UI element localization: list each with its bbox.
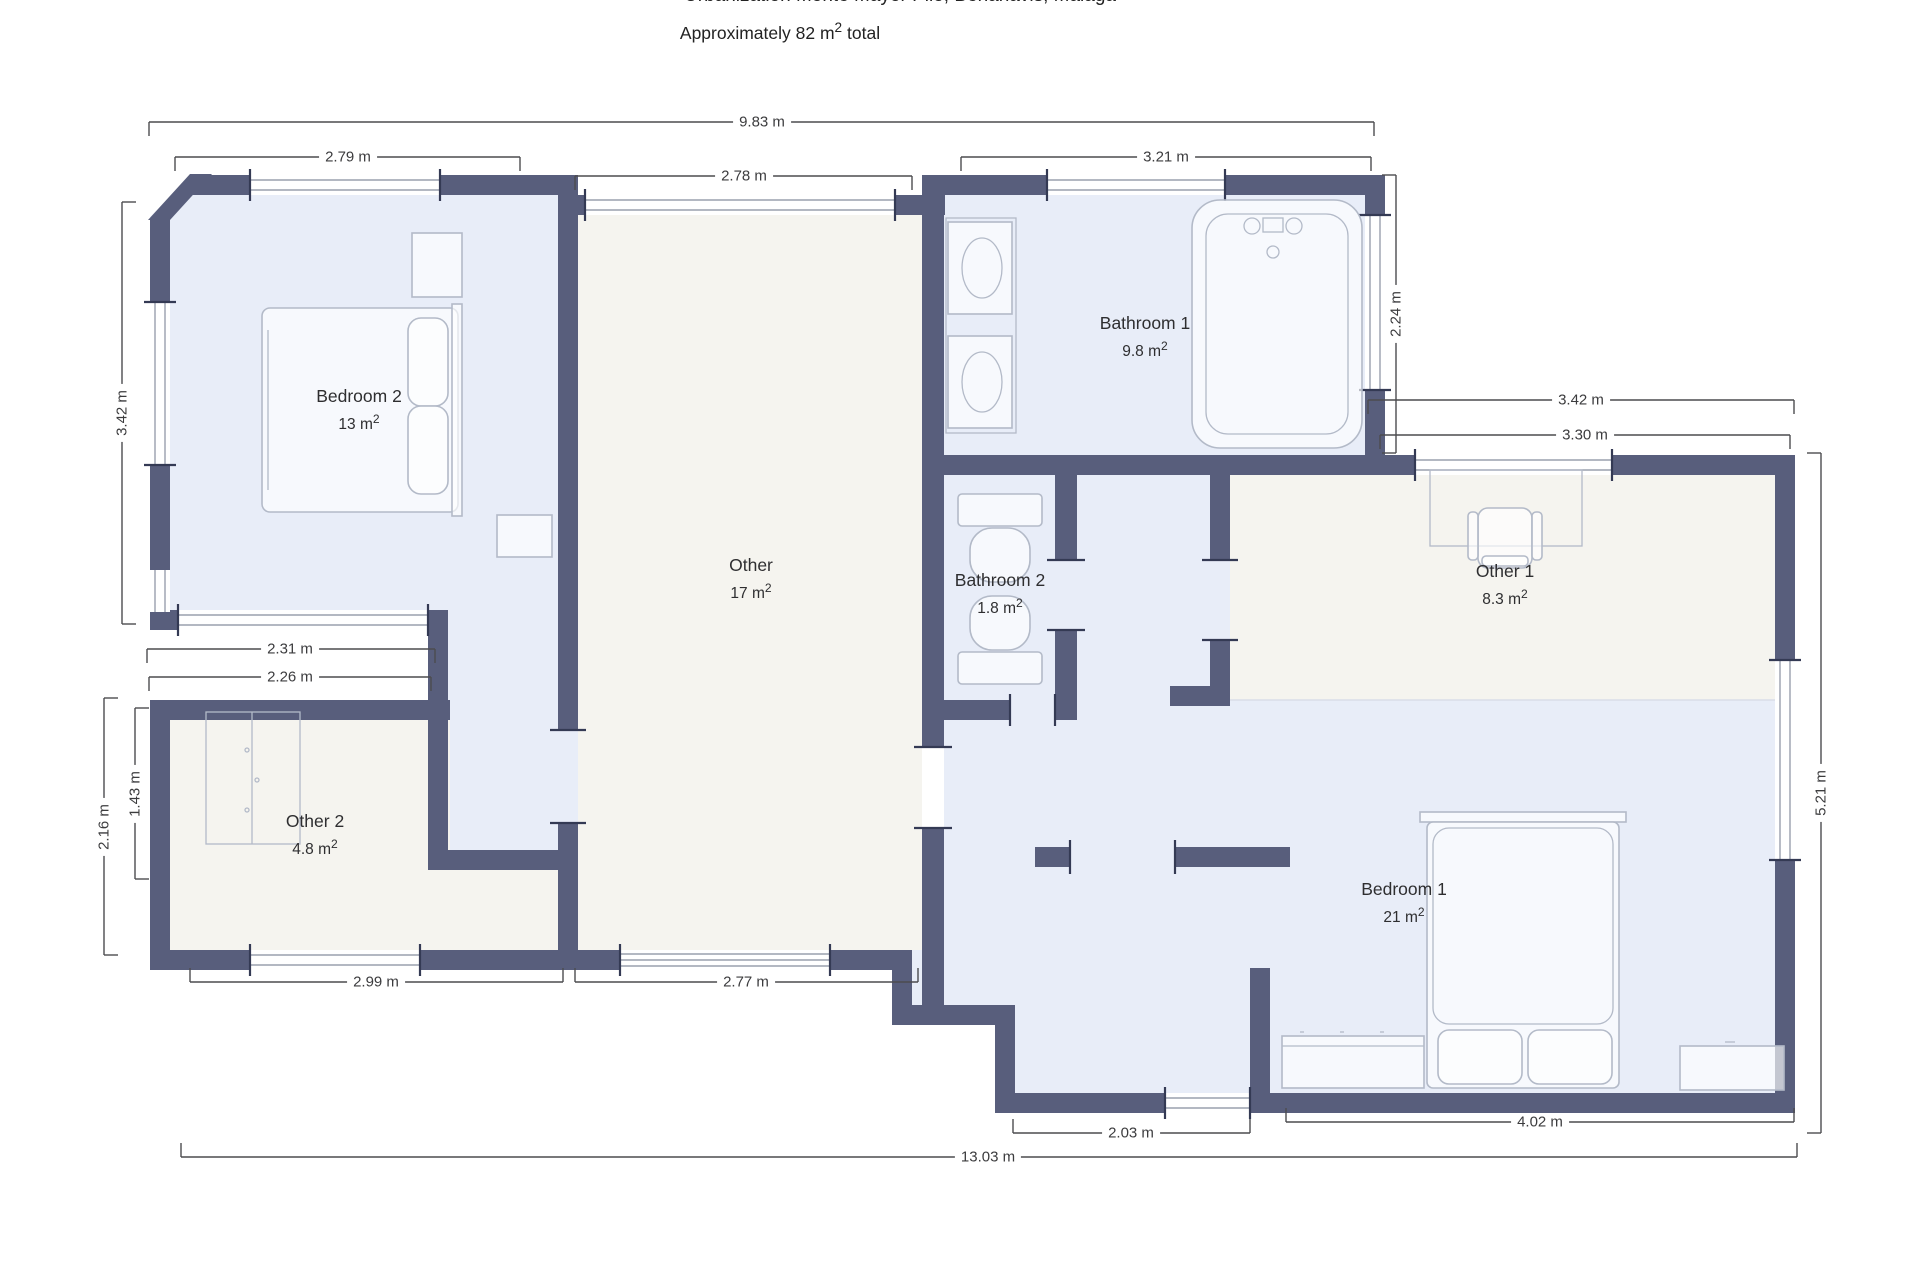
bedroom1-dresser <box>1282 1032 1424 1088</box>
dim-label-right-side: 5.21 m <box>1813 764 1830 822</box>
room-label-other: Other 17 m2 <box>729 555 773 603</box>
exterior-cut-lobby <box>892 1025 995 1113</box>
room-label-bathroom2: Bathroom 2 1.8 m2 <box>955 570 1045 618</box>
room-label-other2: Other 2 4.8 m2 <box>286 811 344 859</box>
wall-bedroom2-other-upper <box>558 175 578 730</box>
wall-other1-left-upper <box>1210 475 1230 560</box>
subtitle-tail: total <box>842 23 880 43</box>
wall-bathroom2-right-lower <box>1055 630 1077 720</box>
wall-bedroom2-bottom-left-post <box>150 610 178 630</box>
room-label-bedroom2: Bedroom 2 13 m2 <box>316 386 402 434</box>
wall-bathroom2-bottom-left <box>944 700 1010 720</box>
wall-bathroom2-left <box>922 475 944 747</box>
dim-label-bedroom2-bottom-outer: 2.31 m <box>261 641 319 658</box>
wall-bedroom2-other-lower <box>558 823 578 970</box>
dim-label-bedroom2-left: 3.42 m <box>114 384 131 442</box>
wall-bedroom1-corner <box>1250 968 1270 1113</box>
wall-other-bathroom1 <box>922 175 944 475</box>
dim-label-other1-top-outer: 3.42 m <box>1552 392 1610 409</box>
wall-vestibule-left <box>428 610 448 857</box>
bedroom1-nightstand <box>1680 1042 1784 1090</box>
dim-label-bedroom1-bottom: 4.02 m <box>1511 1114 1569 1131</box>
bedroom2-bench <box>497 515 552 557</box>
bedroom1-bed <box>1420 812 1626 1088</box>
address-title: Urbanization Monte Mayor Pilo, Benahavis… <box>684 0 1116 7</box>
subtitle-text: Approximately 82 m <box>680 23 835 43</box>
dim-label-other2-bottom: 2.99 m <box>347 974 405 991</box>
dim-label-other1-top-inner: 3.30 m <box>1556 427 1614 444</box>
bathroom1-bathtub <box>1192 200 1362 448</box>
dim-label-bathroom1-top: 3.21 m <box>1137 149 1195 166</box>
dim-label-other-bottom: 2.77 m <box>717 974 775 991</box>
dim-label-other2-left-inner: 1.43 m <box>127 765 144 823</box>
room-label-bedroom1: Bedroom 1 21 m2 <box>1361 879 1447 927</box>
wall-mid-band <box>922 455 1795 475</box>
wall-vestibule-bottom <box>428 850 578 870</box>
wall-bedroom1-partition-left <box>1035 847 1070 867</box>
wall-bedroom1-partition-right <box>1175 847 1290 867</box>
dim-label-overall-bottom: 13.03 m <box>955 1149 1021 1166</box>
window-bedroom2-left-lower <box>150 570 170 612</box>
wall-hall-stub <box>1170 686 1230 706</box>
wall-bathroom2-right-upper <box>1055 475 1077 560</box>
wall-lobby-step <box>892 1005 1015 1025</box>
dim-label-other-top: 2.78 m <box>715 168 773 185</box>
dim-label-entry-bottom: 2.03 m <box>1102 1125 1160 1142</box>
wall-lobby-bottom <box>995 1093 1165 1113</box>
wall-other1-left-lower <box>1210 640 1230 690</box>
dim-label-other2-left-outer: 2.16 m <box>96 798 113 856</box>
wall-other2-left <box>150 720 170 970</box>
dim-label-overall-top: 9.83 m <box>733 114 791 131</box>
total-area-subtitle: Approximately 82 m2 total <box>680 20 880 44</box>
bedroom2-nightstand <box>412 233 462 297</box>
wall-bedroom1-left-lower <box>922 828 944 1025</box>
wall-bedroom1-bottom <box>1250 1093 1795 1113</box>
floor-plan-page: { "header": { "address_line": "Urbanizat… <box>0 0 1920 1280</box>
room-label-bathroom1: Bathroom 1 9.8 m2 <box>1100 313 1190 361</box>
dim-label-bathroom1-right: 2.24 m <box>1388 285 1405 343</box>
dim-label-bedroom2-top: 2.79 m <box>319 149 377 166</box>
room-label-other1: Other 1 8.3 m2 <box>1476 561 1534 609</box>
dim-label-bedroom2-bottom-inner: 2.26 m <box>261 669 319 686</box>
